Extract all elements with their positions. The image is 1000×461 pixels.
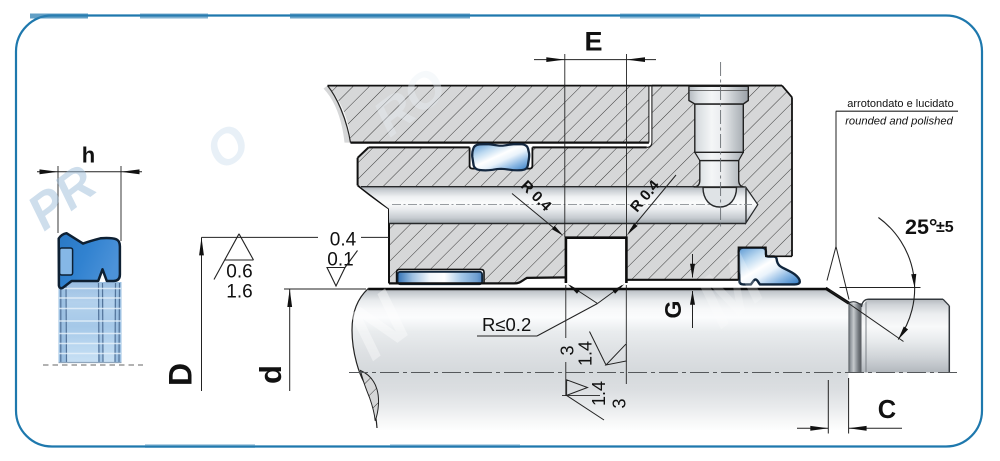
svg-text:±5: ±5 [936, 219, 954, 236]
svg-text:d: d [253, 365, 288, 384]
svg-text:0.6: 0.6 [226, 262, 252, 283]
svg-text:arrotondato e lucidato: arrotondato e lucidato [847, 98, 953, 110]
svg-text:1.6: 1.6 [226, 282, 252, 303]
svg-text:O: O [195, 113, 260, 181]
svg-text:rounded and polished: rounded and polished [845, 116, 953, 128]
svg-text:h: h [82, 143, 95, 168]
svg-text:1.4: 1.4 [589, 381, 609, 406]
svg-text:25°: 25° [905, 215, 938, 239]
svg-text:1.4: 1.4 [576, 341, 596, 366]
svg-text:3: 3 [610, 398, 630, 408]
svg-text:0.4: 0.4 [330, 230, 357, 251]
svg-text:C: C [878, 396, 896, 424]
svg-text:D: D [163, 363, 199, 386]
svg-text:3: 3 [558, 345, 578, 355]
svg-text:G: G [660, 301, 686, 319]
svg-text:E: E [584, 27, 602, 57]
svg-text:R≤0.2: R≤0.2 [482, 314, 531, 335]
